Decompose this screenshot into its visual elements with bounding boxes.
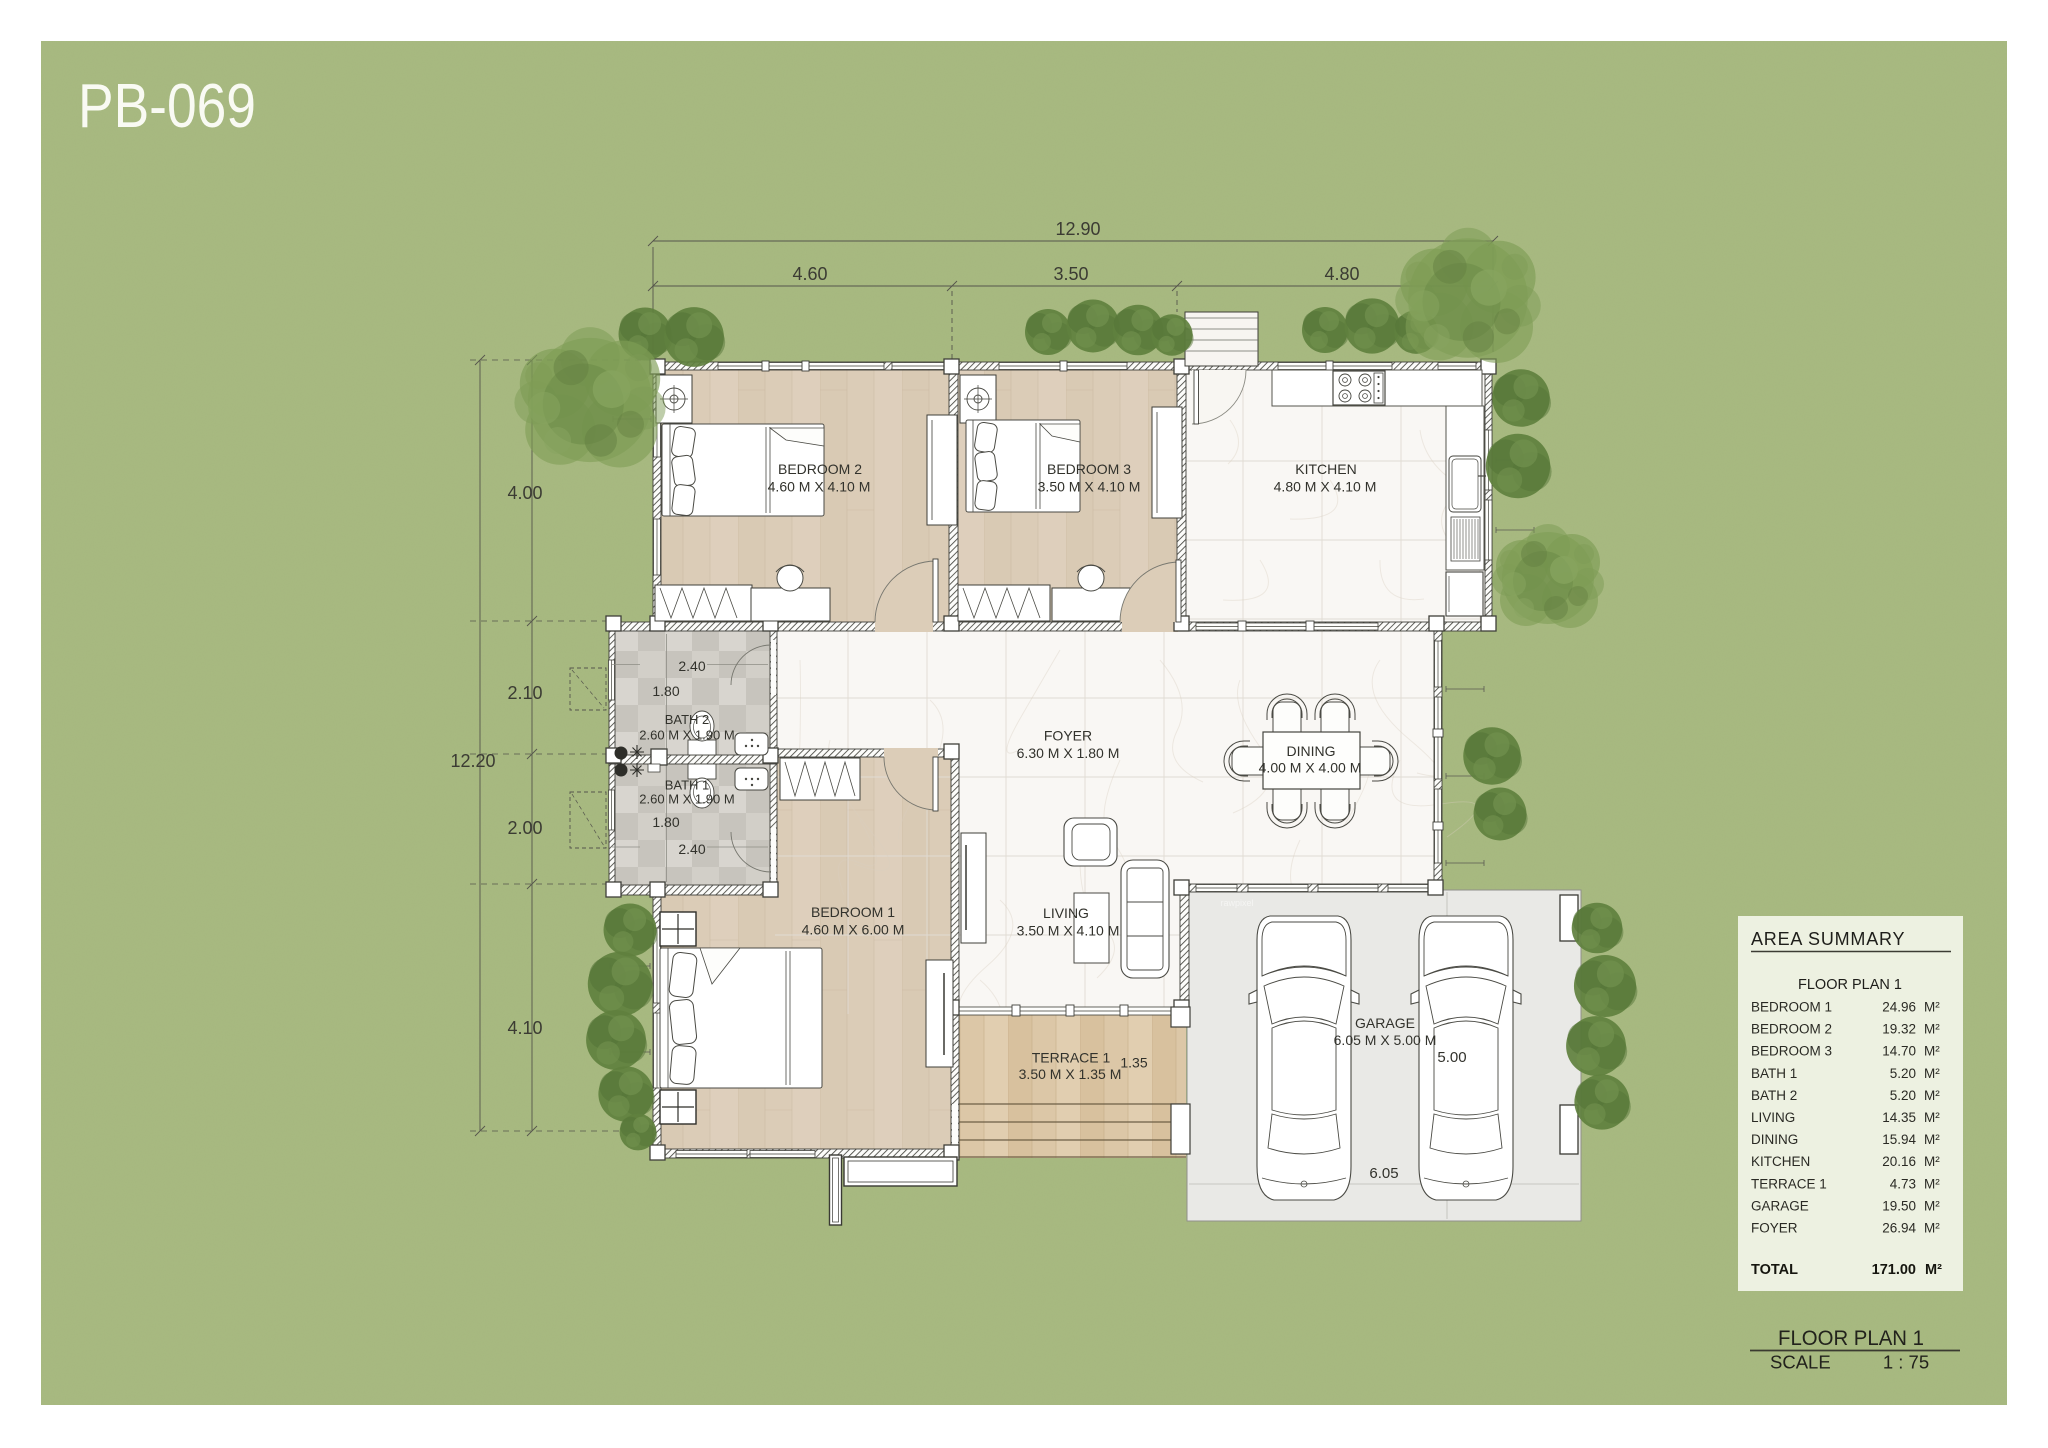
- svg-text:6.05 M X 5.00 M: 6.05 M X 5.00 M: [1334, 1032, 1437, 1048]
- svg-text:26.94: 26.94: [1882, 1221, 1916, 1236]
- svg-text:3.50: 3.50: [1053, 264, 1088, 284]
- svg-text:M²: M²: [1924, 1154, 1940, 1169]
- svg-text:M²: M²: [1924, 1000, 1940, 1015]
- svg-text:1 : 75: 1 : 75: [1883, 1352, 1929, 1373]
- svg-text:3.50 M X 4.10 M: 3.50 M X 4.10 M: [1038, 479, 1141, 495]
- svg-text:12.90: 12.90: [1055, 219, 1100, 239]
- svg-text:BATH 2: BATH 2: [1751, 1088, 1797, 1103]
- svg-text:4.60 M X 6.00 M: 4.60 M X 6.00 M: [802, 922, 905, 938]
- svg-text:171.00: 171.00: [1872, 1262, 1916, 1278]
- svg-text:20.16: 20.16: [1882, 1154, 1916, 1169]
- svg-text:BATH 1: BATH 1: [665, 778, 710, 793]
- svg-text:TOTAL: TOTAL: [1751, 1262, 1798, 1278]
- svg-text:M²: M²: [1924, 1066, 1940, 1081]
- svg-text:BEDROOM 1: BEDROOM 1: [811, 904, 895, 920]
- svg-text:PB-069: PB-069: [78, 72, 256, 141]
- svg-text:6.05: 6.05: [1369, 1165, 1398, 1182]
- svg-text:2.40: 2.40: [678, 841, 705, 857]
- svg-text:M²: M²: [1924, 1221, 1940, 1236]
- svg-text:TERRACE 1: TERRACE 1: [1751, 1176, 1827, 1191]
- svg-text:M²: M²: [1924, 1176, 1940, 1191]
- svg-text:LIVING: LIVING: [1751, 1110, 1795, 1125]
- svg-text:4.00: 4.00: [507, 483, 542, 503]
- svg-text:2.10: 2.10: [507, 683, 542, 703]
- svg-text:M²: M²: [1924, 1132, 1940, 1147]
- svg-text:FOYER: FOYER: [1751, 1221, 1798, 1236]
- svg-text:4.80: 4.80: [1324, 264, 1359, 284]
- svg-text:4.10: 4.10: [507, 1018, 542, 1038]
- svg-text:DINING: DINING: [1751, 1132, 1798, 1147]
- svg-text:15.94: 15.94: [1882, 1132, 1916, 1147]
- svg-text:5.00: 5.00: [1437, 1049, 1466, 1066]
- svg-text:19.50: 19.50: [1882, 1198, 1916, 1213]
- svg-text:SCALE: SCALE: [1770, 1352, 1831, 1373]
- svg-text:GARAGE: GARAGE: [1751, 1198, 1809, 1213]
- svg-text:2.60 M X 1.90 M: 2.60 M X 1.90 M: [639, 728, 734, 743]
- svg-text:rawpixel: rawpixel: [1220, 898, 1253, 908]
- svg-text:BEDROOM 2: BEDROOM 2: [1751, 1022, 1832, 1037]
- svg-text:19.32: 19.32: [1882, 1022, 1916, 1037]
- svg-text:2.60 M X 1.90 M: 2.60 M X 1.90 M: [639, 792, 734, 807]
- svg-text:BATH 2: BATH 2: [665, 712, 710, 727]
- svg-text:M²: M²: [1924, 1022, 1940, 1037]
- svg-text:14.35: 14.35: [1882, 1110, 1916, 1125]
- svg-text:BEDROOM 3: BEDROOM 3: [1047, 461, 1131, 477]
- svg-text:24.96: 24.96: [1882, 1000, 1916, 1015]
- svg-text:4.00 M X 4.00 M: 4.00 M X 4.00 M: [1259, 760, 1362, 776]
- svg-text:3.50 M X 1.35 M: 3.50 M X 1.35 M: [1019, 1066, 1122, 1082]
- svg-text:5.20: 5.20: [1890, 1088, 1916, 1103]
- svg-text:BEDROOM 3: BEDROOM 3: [1751, 1044, 1832, 1059]
- svg-text:KITCHEN: KITCHEN: [1295, 461, 1356, 477]
- svg-text:2.00: 2.00: [507, 818, 542, 838]
- svg-text:KITCHEN: KITCHEN: [1751, 1154, 1810, 1169]
- svg-text:3.50 M X 4.10 M: 3.50 M X 4.10 M: [1017, 923, 1120, 939]
- svg-text:1.80: 1.80: [652, 683, 679, 699]
- svg-text:2.40: 2.40: [678, 658, 705, 674]
- svg-text:1.80: 1.80: [652, 814, 679, 830]
- svg-text:BEDROOM 1: BEDROOM 1: [1751, 1000, 1832, 1015]
- svg-text:TERRACE 1: TERRACE 1: [1032, 1050, 1111, 1066]
- svg-text:4.73: 4.73: [1890, 1176, 1916, 1191]
- svg-text:LIVING: LIVING: [1043, 905, 1089, 921]
- svg-text:4.80 M X 4.10 M: 4.80 M X 4.10 M: [1274, 479, 1377, 495]
- svg-text:DINING: DINING: [1287, 743, 1336, 759]
- svg-text:FLOOR PLAN 1: FLOOR PLAN 1: [1798, 977, 1902, 993]
- svg-text:M²: M²: [1924, 1088, 1940, 1103]
- svg-text:4.60 M X 4.10 M: 4.60 M X 4.10 M: [768, 479, 871, 495]
- svg-text:AREA SUMMARY: AREA SUMMARY: [1751, 929, 1905, 949]
- svg-text:4.60: 4.60: [792, 264, 827, 284]
- svg-text:M²: M²: [1925, 1262, 1942, 1278]
- svg-text:FOYER: FOYER: [1044, 728, 1092, 744]
- svg-text:M²: M²: [1924, 1110, 1940, 1125]
- svg-text:14.70: 14.70: [1882, 1044, 1916, 1059]
- svg-text:5.20: 5.20: [1890, 1066, 1916, 1081]
- svg-text:M²: M²: [1924, 1044, 1940, 1059]
- svg-text:BEDROOM 2: BEDROOM 2: [778, 461, 862, 477]
- svg-text:FLOOR PLAN 1: FLOOR PLAN 1: [1778, 1327, 1924, 1350]
- svg-text:1.35: 1.35: [1120, 1055, 1147, 1071]
- svg-text:GARAGE: GARAGE: [1355, 1015, 1415, 1031]
- svg-text:M²: M²: [1924, 1198, 1940, 1213]
- svg-text:BATH 1: BATH 1: [1751, 1066, 1797, 1081]
- svg-text:6.30 M X 1.80 M: 6.30 M X 1.80 M: [1017, 745, 1120, 761]
